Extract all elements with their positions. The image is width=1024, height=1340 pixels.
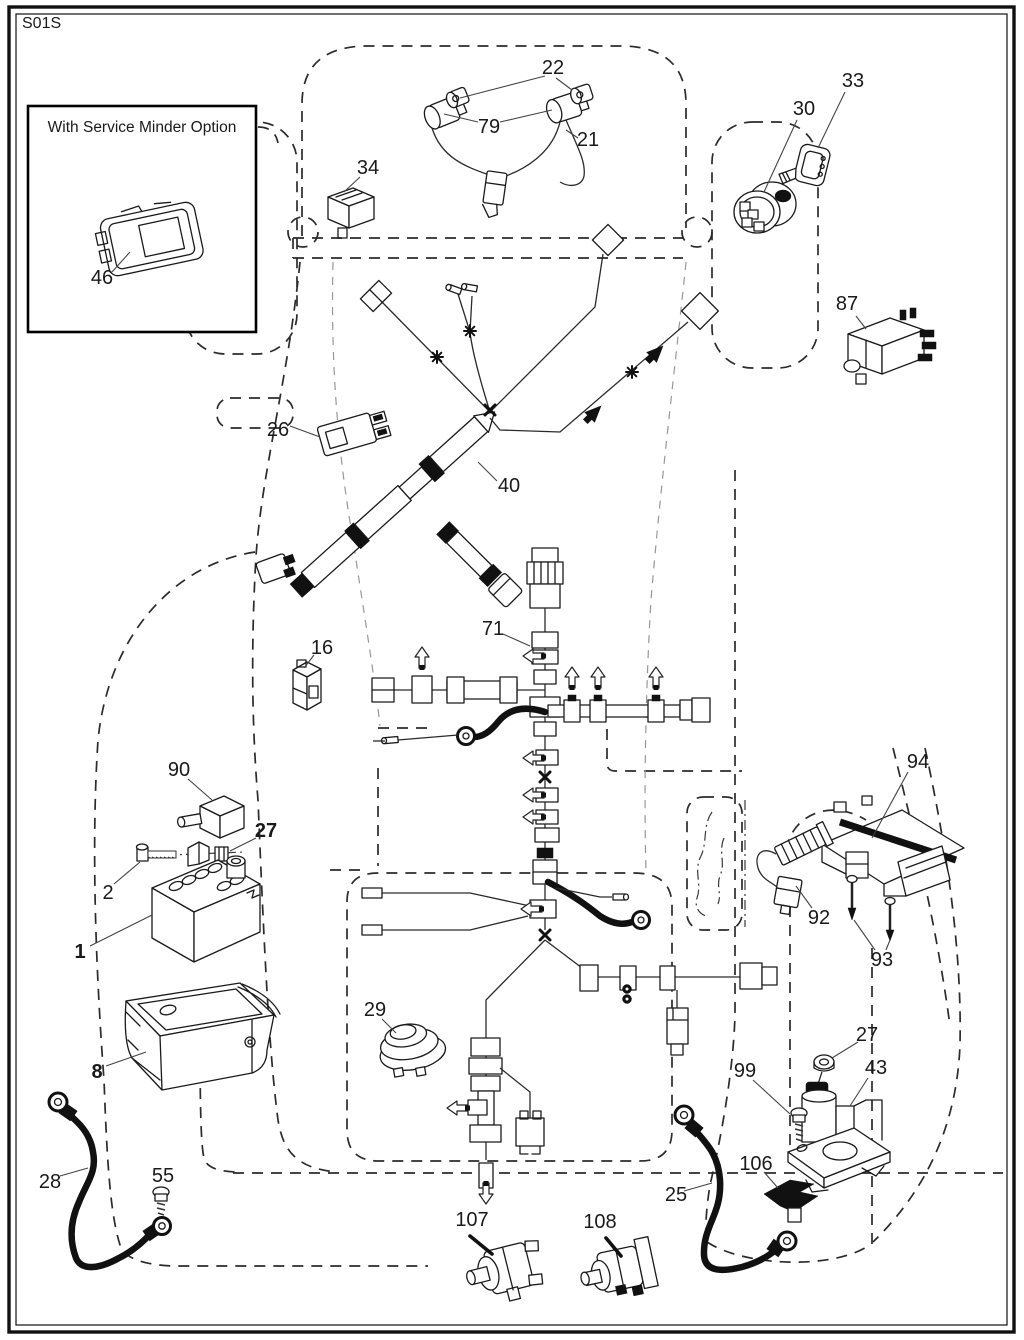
- part-label-87: 87: [836, 293, 858, 315]
- part-label-71: 71: [482, 618, 504, 640]
- main-harness-40: 40: [255, 224, 718, 607]
- bolt-2: [137, 844, 177, 861]
- parts-diagram-page: S01S With Service Minder Option: [0, 0, 1024, 1340]
- part-label-2: 2: [102, 882, 113, 904]
- switch-108: 108: [575, 1211, 659, 1306]
- connector-16: 16: [293, 637, 333, 710]
- part-label-29: 29: [364, 999, 386, 1021]
- part-label-27-solenoid: 27: [856, 1024, 878, 1046]
- nut-27: [215, 847, 228, 861]
- part-label-1: 1: [74, 941, 85, 963]
- frame-plate-outline: [347, 873, 672, 1161]
- battery-drawing: [152, 856, 260, 962]
- part-label-108: 108: [583, 1211, 616, 1233]
- battery-assembly: 27 2 1: [74, 820, 277, 963]
- screw-55: 55: [152, 1165, 174, 1215]
- interlock-switch-87: 87: [836, 293, 936, 384]
- screw: [847, 876, 857, 921]
- part-label-8: 8: [91, 1061, 102, 1083]
- solenoid-43: 27 43: [788, 1024, 890, 1192]
- switch-34: 34: [328, 157, 379, 238]
- part-label-79: 79: [478, 116, 500, 138]
- part-label-46: 46: [91, 267, 113, 289]
- horn-29: [375, 1018, 449, 1082]
- part-label-93: 93: [871, 949, 893, 971]
- part-label-16: 16: [311, 637, 333, 659]
- part-label-43: 43: [865, 1057, 887, 1079]
- headlight-harness: 22 79 21: [421, 57, 599, 219]
- diagram-code: S01S: [22, 15, 61, 32]
- connector-92: 92: [757, 822, 833, 929]
- nut-27-solenoid: [814, 1055, 834, 1071]
- part-label-28: 28: [39, 1171, 61, 1193]
- part-label-106: 106: [739, 1153, 772, 1175]
- screws-93: 93: [847, 876, 895, 972]
- center-harness-71: 71: [362, 548, 777, 1204]
- part-label-30: 30: [793, 98, 815, 120]
- switch-107: 107: [455, 1209, 550, 1310]
- part-label-33: 33: [842, 70, 864, 92]
- seat-bracket-outline: [687, 797, 742, 930]
- right-frame-outline: [706, 470, 735, 1242]
- part-label-34: 34: [357, 157, 379, 179]
- part-label-94: 94: [907, 751, 929, 773]
- dash-panel-band: [293, 238, 683, 258]
- part-label-25: 25: [665, 1184, 687, 1206]
- part-label-55: 55: [152, 1165, 174, 1187]
- part-label-90: 90: [168, 759, 190, 781]
- ignition-key: 33: [777, 70, 864, 193]
- screw-99: 99: [734, 1060, 807, 1141]
- part-label-99: 99: [734, 1060, 756, 1082]
- harness-end-connector: [255, 550, 299, 586]
- inset-title: With Service Minder Option: [48, 119, 237, 136]
- module-94: 94: [822, 751, 964, 896]
- part-90: 90: [168, 759, 244, 838]
- left-fender-outline: [95, 552, 428, 1266]
- service-minder-inset: With Service Minder Option 46: [28, 106, 256, 332]
- fuse-26: 26: [267, 408, 392, 456]
- part-label-21: 21: [577, 129, 599, 151]
- part-label-27-battery: 27: [255, 820, 277, 842]
- part-label-40: 40: [498, 475, 520, 497]
- battery-tray-8: 8: [91, 983, 280, 1090]
- part-label-22: 22: [542, 57, 564, 79]
- part-label-107: 107: [455, 1209, 488, 1231]
- screw: [885, 898, 895, 942]
- battery-cable-28: 28: [39, 1093, 171, 1267]
- headlight-connector: [481, 171, 507, 219]
- part-label-92: 92: [808, 907, 830, 929]
- electrical-parts-diagram: S01S With Service Minder Option: [0, 0, 1024, 1340]
- part-label-26: 26: [267, 419, 289, 441]
- battery-terminal: [227, 856, 245, 878]
